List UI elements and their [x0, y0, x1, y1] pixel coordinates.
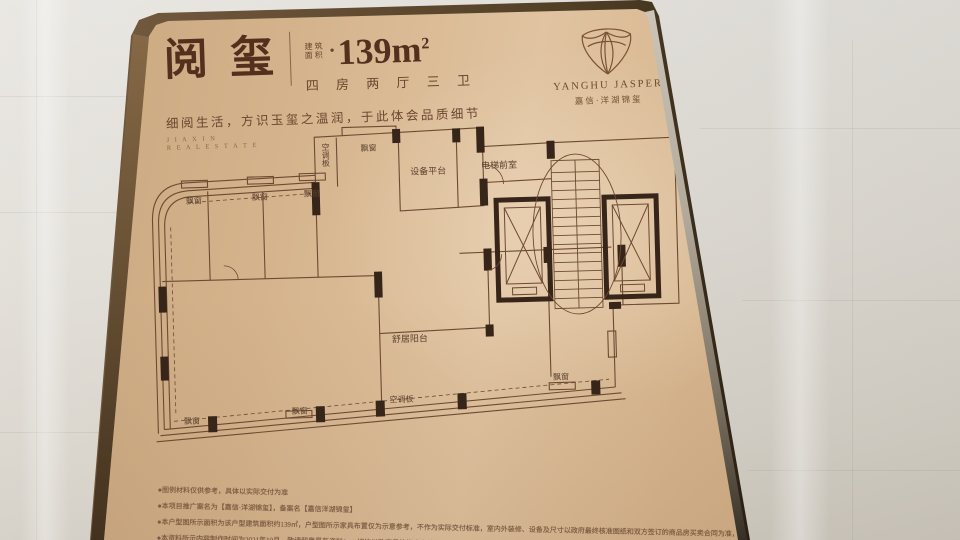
- label-balcony: 舒居阳台: [392, 332, 428, 344]
- lotus-logo-icon: [574, 23, 640, 77]
- room-count: 四 房 两 厅 三 卫: [305, 70, 477, 95]
- plan-labels: 空调板 飘窗 设备平台 电梯前室 飘窗 飘窗 飘窗 舒居阳台 飘窗 飘窗 空调板…: [176, 135, 570, 426]
- label-bay-window: 飘窗: [186, 195, 202, 205]
- marble-joint: [852, 40, 853, 540]
- stairwell: [531, 153, 623, 315]
- marble-streak: [20, 0, 70, 540]
- label-bay-window: 飘窗: [252, 192, 268, 202]
- label-ac-panel-top: 空调板: [321, 142, 331, 168]
- unit-title: 阅玺: [163, 30, 297, 88]
- structural-walls: [154, 123, 630, 434]
- bay-window-dashes: [168, 185, 610, 421]
- label-ac-panel-bottom: 空调板: [389, 394, 413, 405]
- label-equipment-platform: 设备平台: [410, 165, 446, 177]
- label-bay-window: 飘窗: [360, 143, 376, 153]
- label-bay-window: 飘窗: [304, 188, 320, 198]
- marble-joint: [700, 128, 960, 129]
- bullet-icon: ●: [329, 45, 334, 54]
- label-bay-window: 飘窗: [292, 406, 308, 416]
- floorplan-drawing: 空调板 飘窗 设备平台 电梯前室 飘窗 飘窗 飘窗 舒居阳台 飘窗 飘窗 空调板…: [146, 117, 700, 477]
- label-bay-window: 飘窗: [184, 416, 200, 426]
- label-bay-window: 飘窗: [553, 371, 569, 381]
- label-elevator-lobby: 电梯前室: [481, 159, 517, 171]
- brand-name-en: YANGHU JASPER: [540, 78, 676, 94]
- area-value: 139m2: [337, 25, 430, 71]
- photo-of-floorplan-sign: 阅玺 建筑 面积 ● 139m2 四 房 两 厅 三 卫 细阅生活，方识玉玺之温…: [0, 0, 960, 540]
- marble-streak: [770, 0, 830, 540]
- area-label: 建筑 面积: [304, 41, 325, 60]
